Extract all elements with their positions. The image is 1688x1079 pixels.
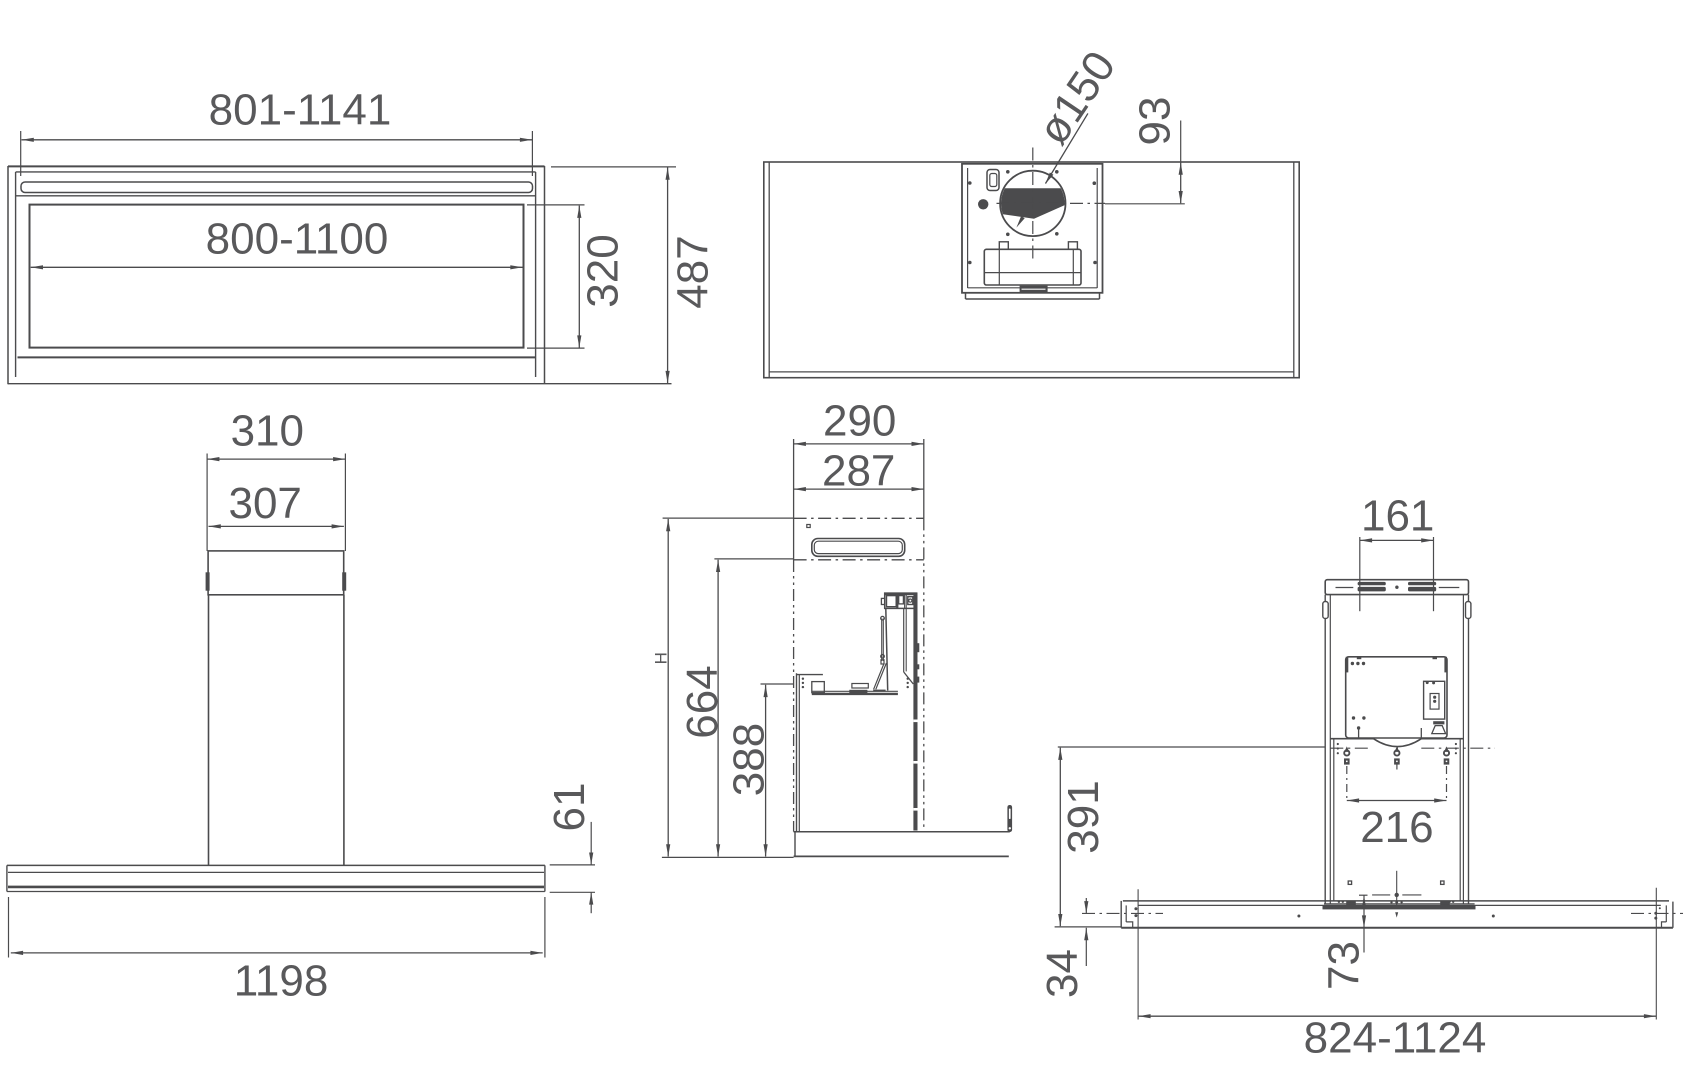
svg-text:800-1100: 800-1100 <box>206 215 389 264</box>
svg-text:161: 161 <box>1361 491 1434 540</box>
svg-text:216: 216 <box>1360 803 1433 852</box>
svg-text:1198: 1198 <box>234 957 329 1006</box>
svg-text:61: 61 <box>545 783 594 832</box>
svg-text:310: 310 <box>231 407 304 456</box>
svg-text:73: 73 <box>1320 941 1369 990</box>
svg-text:34: 34 <box>1038 949 1087 998</box>
svg-text:388: 388 <box>725 723 774 796</box>
svg-text:307: 307 <box>228 479 301 528</box>
svg-text:320: 320 <box>579 234 628 307</box>
svg-text:287: 287 <box>822 447 895 496</box>
svg-text:290: 290 <box>823 397 896 446</box>
svg-text:664: 664 <box>678 665 727 738</box>
svg-text:391: 391 <box>1059 780 1108 853</box>
svg-text:801-1141: 801-1141 <box>209 86 392 135</box>
svg-text:487: 487 <box>669 235 718 308</box>
svg-text:93: 93 <box>1130 97 1179 146</box>
svg-text:824-1124: 824-1124 <box>1304 1014 1487 1063</box>
